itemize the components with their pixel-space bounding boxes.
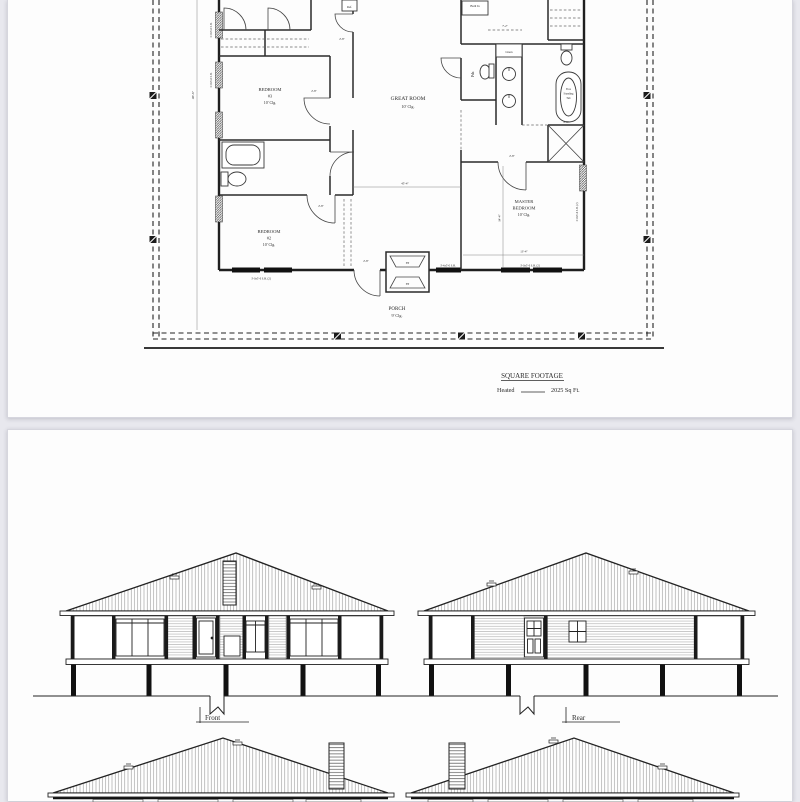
svg-text:13'-4": 13'-4"	[520, 250, 528, 254]
room-labels: BEDROOM #3 10' Clg. BEDROOM #2 10' Clg. …	[258, 87, 536, 318]
window-label: 3'-0x5'-0 S.H. (2)	[251, 278, 271, 281]
front-label: Front	[205, 714, 220, 722]
fireplace: FP FP	[386, 252, 429, 292]
svg-text:#2: #2	[267, 236, 271, 241]
front-title: Front	[196, 707, 249, 723]
svg-text:10' Clg.: 10' Clg.	[518, 212, 531, 217]
tub-label: Free	[566, 88, 572, 91]
svg-text:9' Clg.: 9' Clg.	[392, 313, 403, 318]
front-rim-band	[66, 659, 388, 665]
svg-text:45'-4": 45'-4"	[401, 182, 409, 186]
front-chimney	[223, 561, 236, 605]
svg-text:14'-4": 14'-4"	[498, 214, 502, 222]
svg-text:2'-8": 2'-8"	[311, 89, 317, 93]
svg-text:2'-8": 2'-8"	[363, 259, 369, 263]
elevations-page: Front	[7, 429, 793, 801]
door-swings	[224, 8, 526, 296]
porch-label: PORCH	[389, 307, 406, 312]
svg-text:2'-8": 2'-8"	[318, 204, 324, 208]
fireplace-label: FP	[406, 261, 410, 265]
built-in-label: Built In	[470, 4, 480, 8]
svg-text:10' Clg.: 10' Clg.	[401, 104, 414, 109]
counter-dim: 7'-2"	[502, 24, 508, 28]
bottom-windows	[232, 268, 562, 273]
svg-text:10' Clg.: 10' Clg.	[264, 100, 277, 105]
linen-label: Linen	[506, 50, 513, 54]
square-footage-title: SQUARE FOOTAGE	[501, 372, 563, 380]
overall-dimension: 46'-6"	[191, 0, 197, 330]
square-footage-block: SQUARE FOOTAGE Heated 2025 Sq Ft.	[497, 372, 580, 394]
tub-label: Tub	[566, 97, 571, 100]
side-elevation-right	[406, 738, 739, 802]
heated-label: Heated	[497, 387, 515, 394]
rear-label: Rear	[572, 714, 586, 722]
floor-plan-drawing: 46'-6" 3'-0x5'-0 S.H. 3'-0x5'-0 S.H. 3'-…	[8, 0, 794, 418]
svg-text:10' Clg.: 10' Clg.	[263, 242, 276, 247]
side-left-chimney	[329, 743, 344, 789]
rear-piers	[429, 665, 742, 697]
window-label: 3'-0x5'-0 S.H.	[210, 72, 213, 87]
front-grade-line	[33, 696, 416, 714]
window-label: 3'-0x5'-0 S.H. (2)	[520, 265, 540, 268]
front-elevation: Front	[33, 553, 416, 723]
window-label: 3'-0x5'-0 S.H. (2)	[576, 203, 579, 222]
rear-elevation: Rear	[393, 553, 778, 723]
rear-rim-band	[424, 659, 749, 665]
shower-dim: 4'-6"	[563, 120, 569, 124]
fireplace-label: FP	[406, 282, 410, 286]
master-bedroom-label: MASTER	[515, 199, 535, 204]
window-label: 3'-4x5'-0 S.H.	[440, 265, 456, 268]
svg-text:2'-8": 2'-8"	[509, 154, 515, 158]
heated-value: 2025 Sq Ft.	[551, 387, 580, 394]
bedroom2-label: BEDROOM	[258, 229, 281, 234]
rear-title: Rear	[562, 707, 620, 723]
side-right-chimney	[449, 743, 465, 789]
fridge-label: Ref.	[347, 5, 352, 9]
svg-text:2'-8": 2'-8"	[339, 37, 345, 41]
svg-text:#3: #3	[268, 94, 272, 99]
bath3-fixtures	[221, 142, 264, 186]
front-fireplace-box	[224, 636, 240, 656]
great-room-label: GREAT ROOM	[391, 96, 426, 102]
bedroom3-label: BEDROOM	[259, 87, 282, 92]
floor-plan-page: 46'-6" 3'-0x5'-0 S.H. 3'-0x5'-0 S.H. 3'-…	[7, 0, 793, 418]
tub-label: Standing	[564, 93, 575, 96]
rear-grade-line	[393, 696, 778, 714]
window-label: 3'-0x5'-0 S.H.	[210, 22, 213, 37]
svg-text:BEDROOM: BEDROOM	[513, 206, 536, 211]
side-elevation-left	[48, 738, 394, 802]
overall-depth-dim: 46'-6"	[191, 90, 195, 99]
powder-label: Pdr.	[470, 71, 475, 77]
elevations-drawing: Front	[8, 430, 794, 802]
front-piers	[71, 665, 381, 697]
rear-roof	[424, 553, 749, 611]
